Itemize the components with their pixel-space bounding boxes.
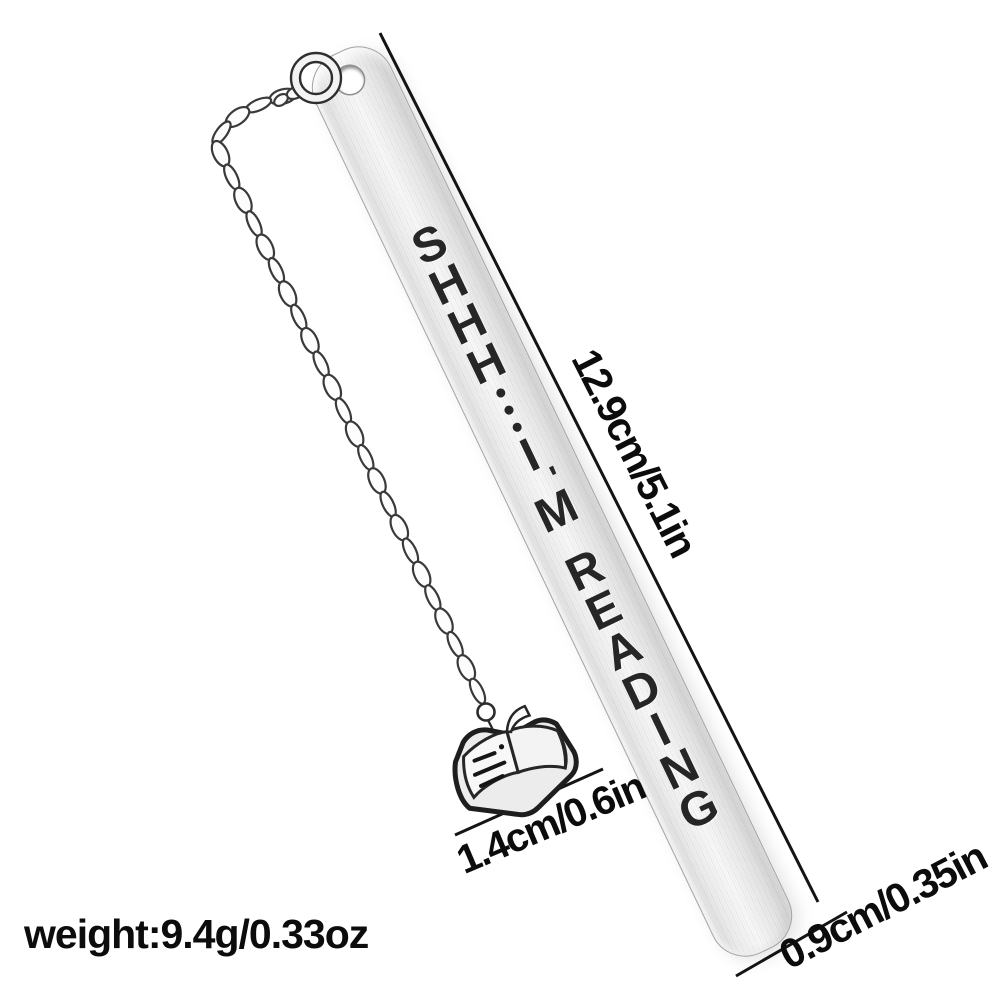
charm-bail-ring-icon	[478, 704, 495, 731]
jump-ring-icon	[291, 53, 341, 103]
chain-links-icon	[208, 86, 488, 706]
weight-label: weight:9.4g/0.33oz	[24, 911, 368, 958]
product-photo-canvas: SHHHI'MREADING	[0, 0, 1000, 1000]
